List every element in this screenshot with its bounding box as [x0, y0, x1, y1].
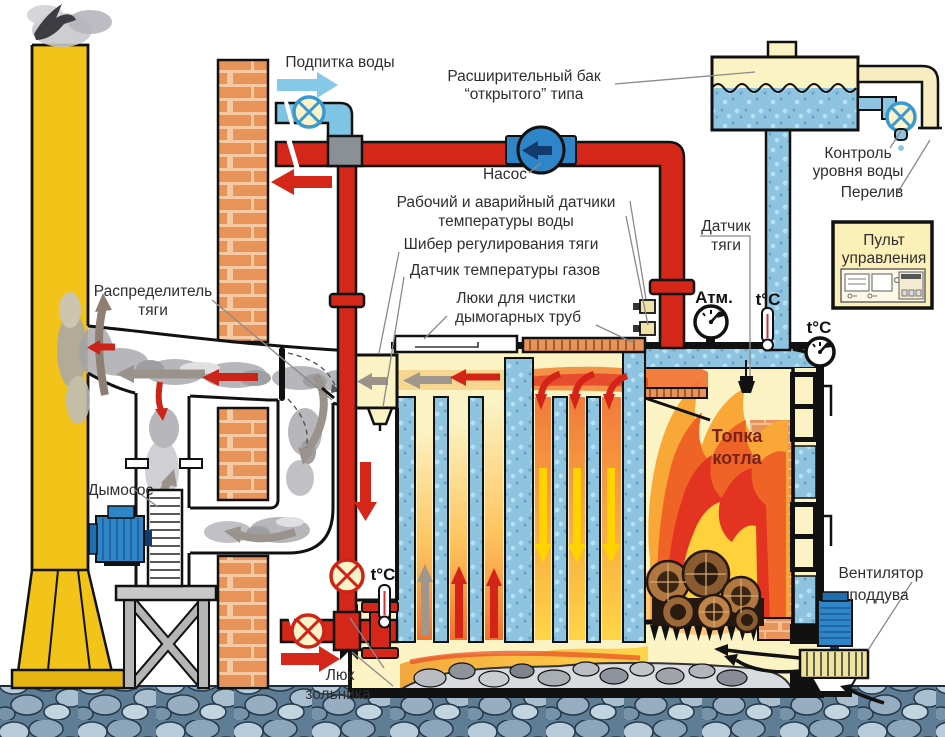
- label-water-sensors-1: Рабочий и аварийный датчики: [397, 194, 616, 211]
- pipe-tee: [328, 136, 362, 166]
- label-overflow: Перелив: [841, 184, 903, 201]
- label-exhauster: Дымосос: [88, 482, 153, 499]
- label-distributor-2: тяги: [138, 302, 168, 319]
- thermometer-top: [762, 308, 773, 351]
- exhauster-motor: [89, 506, 152, 566]
- boiler-system-diagram: Подпитка воды Расширительный бак “открыт…: [0, 0, 945, 737]
- blower-housing: [800, 650, 868, 678]
- label-level-control-2: уровня воды: [813, 163, 904, 180]
- label-panel-2: управления: [842, 250, 927, 267]
- chimney-base: [12, 670, 124, 688]
- makeup-valve: [294, 97, 324, 127]
- label-temp-right: t°C: [807, 318, 832, 337]
- label-firebox-1: Топка: [712, 426, 764, 446]
- label-gas-temp-sensor: Датчик температуры газов: [410, 262, 600, 279]
- return-valve: [292, 615, 324, 647]
- label-panel-1: Пульт: [863, 232, 905, 249]
- riser-valve: [331, 560, 363, 592]
- label-water-sensors-2: температуры воды: [438, 213, 574, 230]
- label-temp-top: t°C: [756, 290, 781, 309]
- label-expansion-tank-1: Расширительный бак: [447, 68, 601, 85]
- blower-motor: [818, 592, 852, 651]
- return-flow-arrow: [281, 653, 319, 665]
- label-temp-bottom: t°C: [371, 565, 396, 584]
- return-riser-pipe: [338, 166, 356, 624]
- label-blower-2: поддува: [849, 587, 909, 604]
- duct-flange: [180, 459, 202, 468]
- inner-cleaning-hatch: [645, 388, 707, 398]
- duct-flange: [126, 459, 148, 468]
- label-draft-sensor-1: Датчик: [701, 218, 751, 235]
- label-hatches-1: Люки для чистки: [456, 290, 575, 307]
- label-firebox-2: котла: [712, 448, 762, 468]
- label-draft-gate: Шибер регулирования тяги: [404, 236, 599, 253]
- label-ash-hatch-2: зольника: [305, 686, 371, 703]
- label-hatches-2: дымогарных труб: [455, 309, 581, 326]
- thermometer-bottom: [379, 585, 390, 628]
- label-expansion-tank-2: “открытого” типа: [465, 86, 584, 103]
- label-atm: Атм.: [695, 288, 733, 307]
- label-pump: Насос: [483, 166, 527, 183]
- label-distributor-1: Распределитель: [94, 283, 213, 300]
- downflow-arrow: [360, 462, 371, 502]
- makeup-flow-arrow: [277, 79, 317, 91]
- label-level-control-1: Контроль: [824, 145, 891, 162]
- label-draft-sensor-2: тяги: [711, 237, 741, 254]
- label-water-makeup: Подпитка воды: [285, 54, 394, 71]
- label-ash-hatch-1: Люк: [326, 667, 355, 684]
- ash-pile: [400, 662, 792, 690]
- boiler: [340, 336, 831, 698]
- label-blower-1: Вентилятор: [839, 565, 924, 582]
